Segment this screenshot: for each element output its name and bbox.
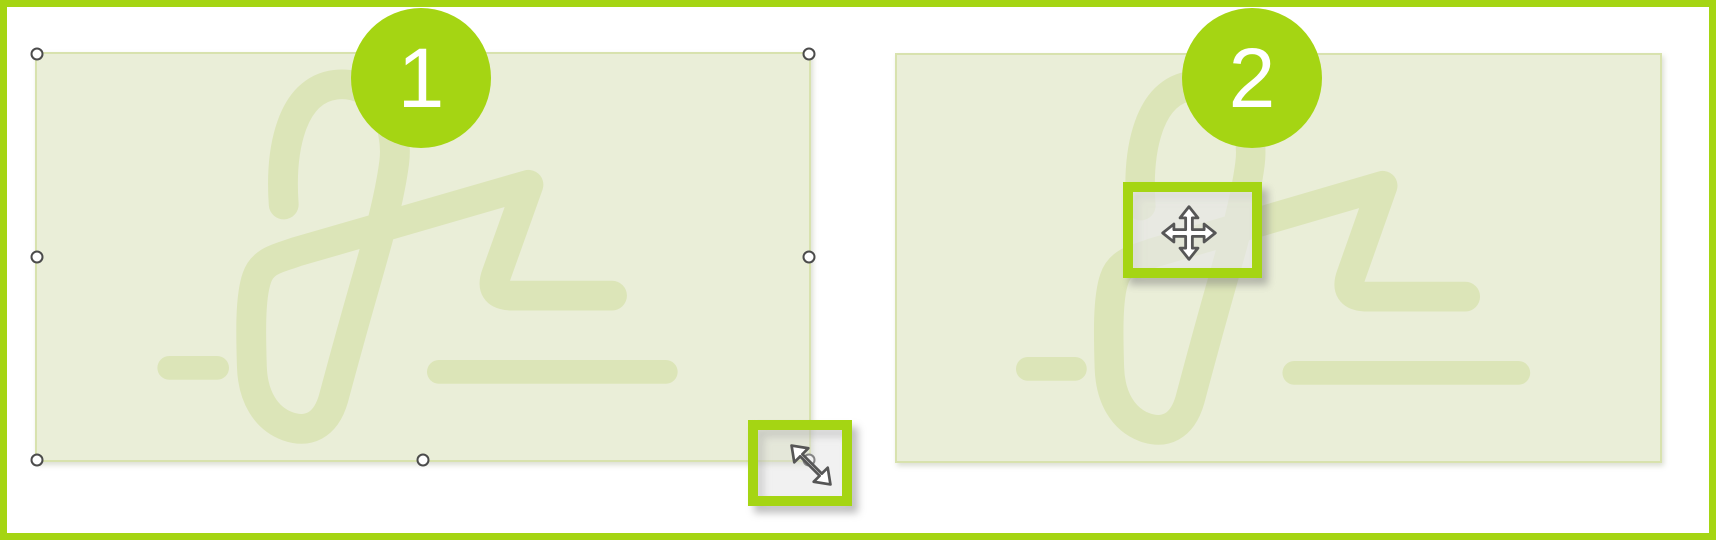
selection-handle-bottom-middle[interactable]: [417, 454, 430, 467]
selection-handle-top-right[interactable]: [803, 48, 816, 61]
step-2-number: 2: [1229, 36, 1276, 120]
selection-handle-middle-right[interactable]: [803, 251, 816, 264]
diagonal-resize-cursor-icon: [784, 438, 838, 492]
move-cursor-icon: [1161, 205, 1217, 261]
step-1-badge: 1: [351, 8, 491, 148]
step-2-badge: 2: [1182, 8, 1322, 148]
step-1-number: 1: [398, 36, 445, 120]
selection-handle-bottom-left[interactable]: [31, 454, 44, 467]
selection-handle-top-left[interactable]: [31, 48, 44, 61]
tutorial-screenshot-frame: 1 2: [0, 0, 1716, 540]
selection-handle-middle-left[interactable]: [31, 251, 44, 264]
